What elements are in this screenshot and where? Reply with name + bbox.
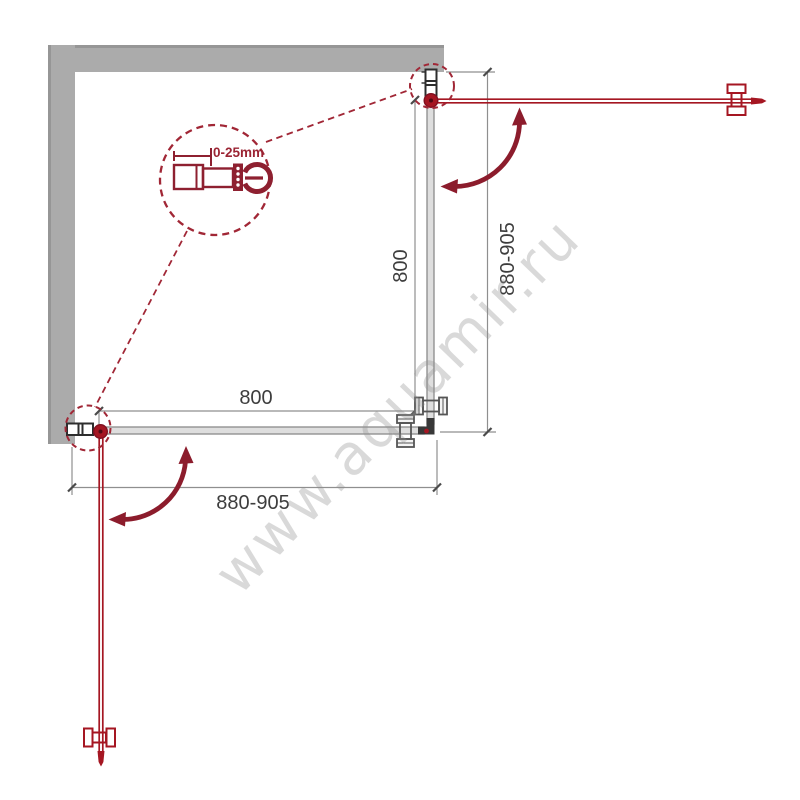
glass-panel-right [427,106,434,424]
wall-top [48,45,444,72]
wall-profile-bottom [67,424,93,436]
callout-leader-lines [95,89,412,407]
shower-enclosure-plan-diagram: 800 880-905 800 880-905 0-25mm www.aquam… [0,0,800,800]
detail-view-circle [160,125,270,235]
swing-arrow-top-door [441,108,528,194]
pivot-hinge-bottom [94,425,108,439]
diagram-canvas [0,0,800,800]
swing-arrow-bottom-door [109,446,194,527]
dimension-label-width-inner: 800 [216,388,296,408]
dimension-label-height-inner: 800 [391,249,411,282]
detail-adjustment-label: 0-25mm [213,146,264,160]
glass-panel-bottom [106,427,424,434]
dimension-label-width-overall: 880-905 [193,493,313,513]
wall-left [48,45,75,444]
wall-profile-top [422,70,437,98]
corner-connector [418,418,431,433]
dimension-label-height-overall: 880-905 [498,222,518,295]
pivot-hinge-top [424,94,438,108]
